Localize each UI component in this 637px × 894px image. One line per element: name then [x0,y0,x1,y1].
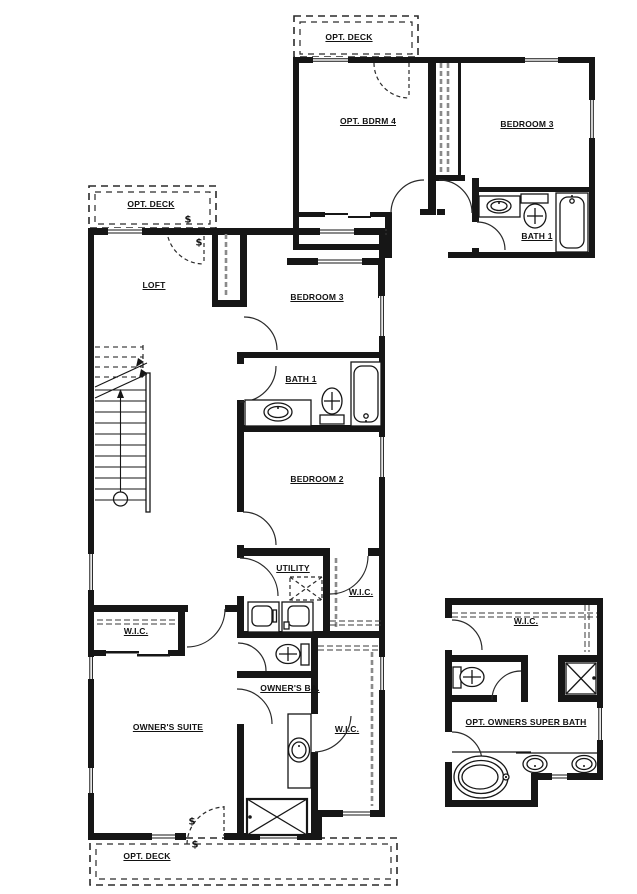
washer-fixture [248,602,279,632]
sink-fixture [245,400,311,426]
optional-appliance-box [290,577,322,600]
closet-shelf-dashes [97,234,382,806]
room-label-owners-ba: OWNER'S BA. [260,683,319,693]
toilet-fixture [276,644,309,665]
shower-fixture [566,663,596,694]
room-label-opt-bdrm4: OPT. BDRM 4 [340,116,396,126]
room-label-owners-suite: OWNER'S SUITE [133,722,203,732]
sink-fixture [288,714,311,788]
room-label-opt-deck-bottom: OPT. DECK [123,851,170,861]
switch-symbol: $ [189,817,196,828]
room-label-opt-deck-top: OPT. DECK [127,199,174,209]
dryer-fixture [282,602,313,632]
upper-plan [287,16,595,298]
main-plan [88,186,397,885]
room-label-bedroom3-upper: BEDROOM 3 [500,119,553,129]
room-label-wic-owners: W.I.C. [335,724,359,734]
room-label-bath1-upper: BATH 1 [521,231,552,241]
window [88,228,385,840]
bathtub-fixture [351,362,381,426]
toilet-fixture [521,194,548,228]
double-sink-fixture [516,753,597,773]
door-arc [452,620,521,762]
bathtub-fixture [556,193,588,252]
closet-shelf-dashes [300,63,448,234]
toilet-fixture [320,388,344,424]
room-label-wic-left: W.I.C. [124,626,148,636]
switch-symbol: $ [196,238,203,249]
toilet-fixture [453,667,484,688]
switch-symbol: $ [185,215,192,226]
room-label-wic-superbath: W.I.C. [514,616,538,626]
room-label-opt-deck-upper: OPT. DECK [325,32,372,42]
floor-plan-sheet: OPT. DECK OPT. BDRM 4 BEDROOM 3 BATH 1 O… [0,0,637,894]
switch-symbol: $ [192,840,199,851]
door-arc [168,236,368,844]
garden-tub-fixture [454,756,509,798]
staircase [95,345,150,512]
super-bath-plan [445,598,603,807]
main-plan-walls [88,228,385,840]
floor-plan-drawing [0,0,637,894]
door-arc [374,63,505,250]
room-label-bedroom3-main: BEDROOM 3 [290,292,343,302]
room-label-wic-hall: W.I.C. [349,587,373,597]
room-label-utility: UTILITY [276,563,310,573]
shower-fixture [247,799,307,835]
room-label-bedroom2: BEDROOM 2 [290,474,343,484]
room-label-bath1-main: BATH 1 [285,374,316,384]
room-label-loft: LOFT [143,280,166,290]
sink-fixture [479,196,520,217]
room-label-opt-owners-super-bath: OPT. OWNERS SUPER BATH [466,717,587,727]
